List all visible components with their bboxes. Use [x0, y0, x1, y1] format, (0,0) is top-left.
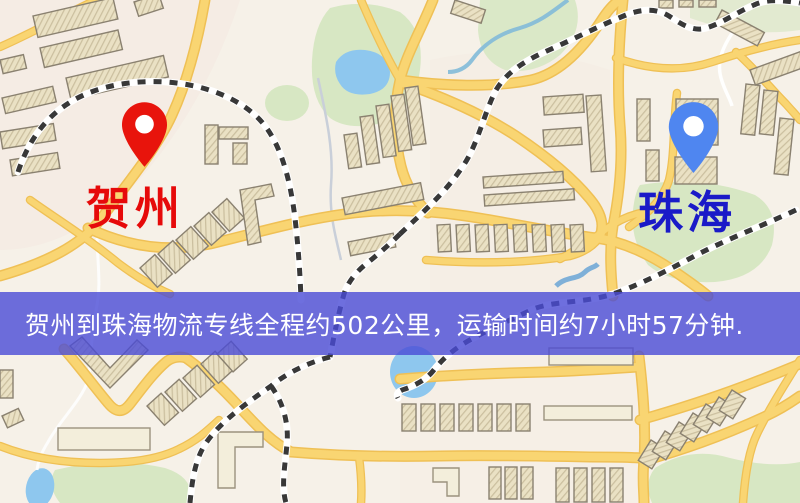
- destination-pin-shape: [669, 102, 718, 173]
- map-background: [0, 0, 800, 503]
- destination-label: 珠海: [638, 176, 736, 241]
- route-info-text: 贺州到珠海物流专线全程约502公里，运输时间约7小时57分钟.: [0, 306, 744, 342]
- origin-pin-shape: [122, 102, 167, 167]
- origin-label: 贺州: [86, 172, 184, 237]
- origin-pin-icon[interactable]: [121, 101, 168, 168]
- origin-pin-hole: [135, 115, 154, 134]
- destination-pin-hole: [683, 116, 703, 136]
- route-info-banner: 贺州到珠海物流专线全程约502公里，运输时间约7小时57分钟.: [0, 292, 800, 355]
- destination-pin-icon[interactable]: [664, 101, 723, 174]
- map-canvas[interactable]: 贺州 珠海 贺州到珠海物流专线全程约502公里，运输时间约7小时57分钟.: [0, 0, 800, 503]
